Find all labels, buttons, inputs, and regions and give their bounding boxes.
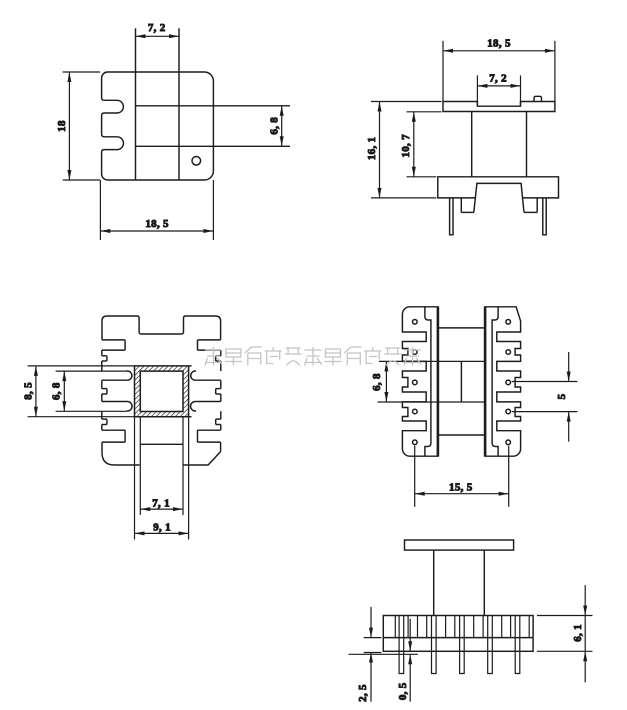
svg-text:6, 8: 6, 8 <box>371 373 383 391</box>
svg-text:8, 5: 8, 5 <box>22 382 34 400</box>
svg-text:10, 7: 10, 7 <box>400 134 412 158</box>
svg-text:18, 5: 18, 5 <box>487 38 511 50</box>
svg-text:0, 5: 0, 5 <box>397 682 409 700</box>
svg-text:6, 8: 6, 8 <box>268 117 280 135</box>
svg-text:18: 18 <box>56 120 68 132</box>
svg-text:15, 5: 15, 5 <box>449 481 473 493</box>
svg-text:7, 2: 7, 2 <box>489 72 507 84</box>
svg-text:7, 2: 7, 2 <box>148 22 166 34</box>
svg-text:18, 5: 18, 5 <box>145 218 169 230</box>
svg-text:2, 5: 2, 5 <box>357 684 369 702</box>
svg-text:6, 8: 6, 8 <box>51 382 63 400</box>
svg-text:16, 1: 16, 1 <box>366 137 378 161</box>
svg-text:7, 1: 7, 1 <box>152 497 170 509</box>
svg-text:9, 1: 9, 1 <box>153 521 171 533</box>
svg-text:6, 1: 6, 1 <box>572 624 584 642</box>
svg-text:5: 5 <box>556 393 568 399</box>
